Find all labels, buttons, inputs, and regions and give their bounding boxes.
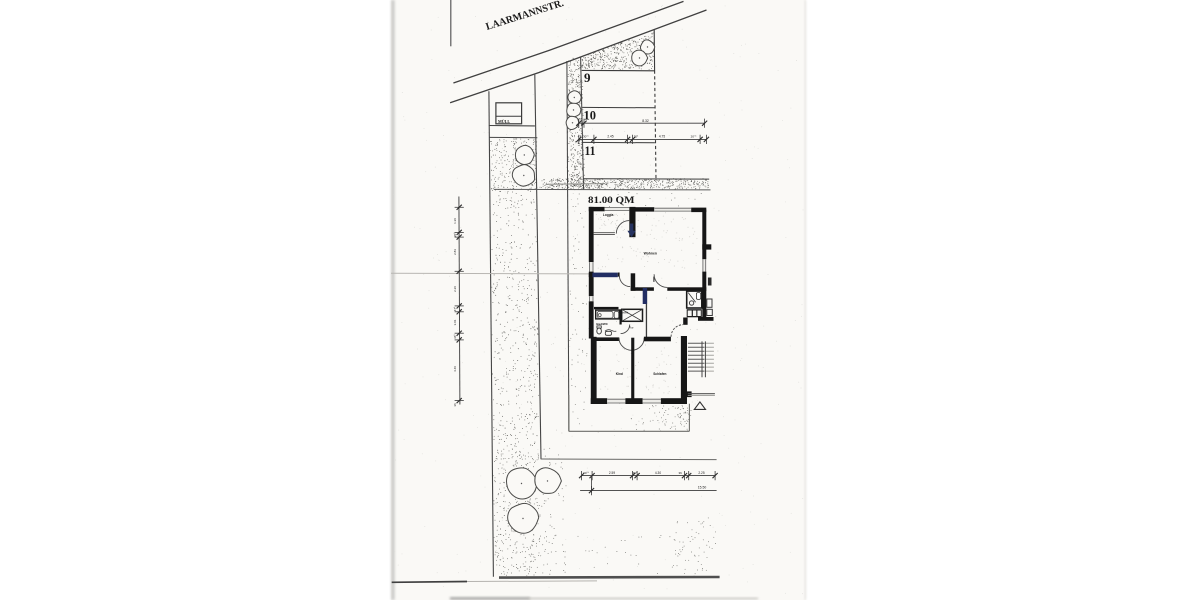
svg-text:Wohnen: Wohnen	[644, 252, 657, 256]
svg-text:Flur: Flur	[629, 325, 634, 329]
svg-text:MÜLL: MÜLL	[498, 119, 510, 124]
svg-text:4.75: 4.75	[659, 135, 665, 139]
svg-text:Schlafen: Schlafen	[653, 372, 666, 376]
svg-text:30⁵: 30⁵	[633, 471, 638, 475]
svg-text:2.25: 2.25	[698, 471, 704, 475]
svg-text:47⁵: 47⁵	[453, 306, 457, 311]
svg-text:20⁷⁵: 20⁷⁵	[691, 135, 697, 139]
svg-text:15.50: 15.50	[698, 486, 707, 490]
svg-text:1.36: 1.36	[453, 218, 457, 224]
svg-text:4.46: 4.46	[453, 366, 457, 372]
svg-text:2.83: 2.83	[453, 249, 457, 255]
svg-text:2.26: 2.26	[453, 286, 457, 292]
svg-text:2.45: 2.45	[607, 135, 613, 139]
svg-text:Kind: Kind	[616, 372, 623, 376]
svg-text:Loggia: Loggia	[603, 213, 614, 217]
svg-text:36: 36	[453, 403, 457, 407]
svg-text:Abstellr.: Abstellr.	[620, 312, 629, 315]
svg-text:3.01: 3.01	[453, 319, 457, 325]
svg-text:36⁵: 36⁵	[453, 334, 457, 339]
svg-text:8.32: 8.32	[642, 119, 649, 123]
svg-text:11: 11	[585, 143, 596, 158]
svg-text:9: 9	[584, 70, 591, 85]
svg-text:4.30: 4.30	[655, 471, 661, 475]
svg-text:81.00 QM: 81.00 QM	[588, 196, 635, 206]
svg-text:30⁵: 30⁵	[634, 135, 639, 139]
svg-text:Bad/WC: Bad/WC	[596, 322, 608, 326]
svg-text:20⁷⁵: 20⁷⁵	[583, 471, 589, 475]
svg-text:10: 10	[584, 108, 597, 123]
svg-text:2.59: 2.59	[609, 471, 615, 475]
svg-text:20⁵: 20⁵	[453, 232, 457, 237]
svg-text:30⁷⁵: 30⁷⁵	[583, 135, 589, 139]
svg-text:36: 36	[679, 471, 683, 475]
